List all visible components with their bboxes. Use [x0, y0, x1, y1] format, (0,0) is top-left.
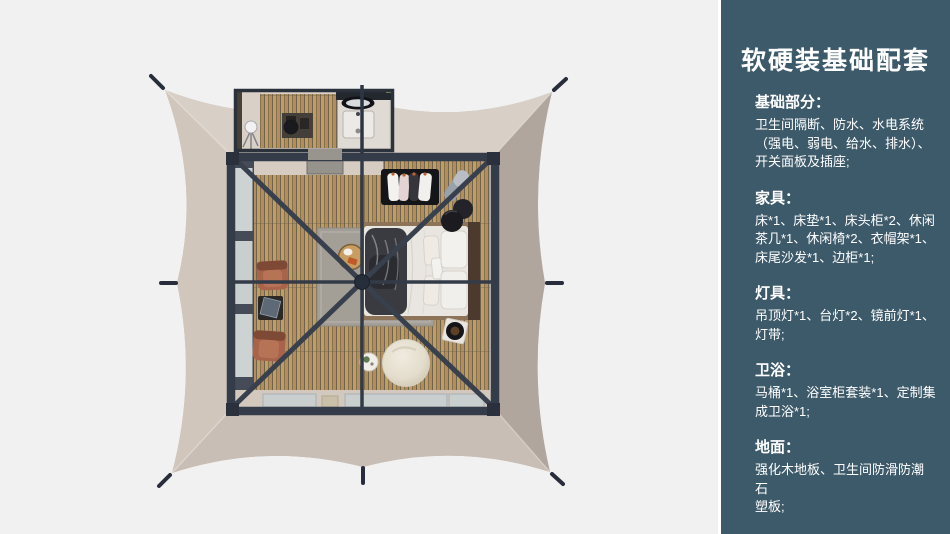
section-flooring-body: 强化木地板、卫生间防滑防潮石 塑板;	[755, 461, 936, 517]
desk-chair	[284, 120, 299, 135]
section-furniture-body: 床*1、床垫*1、床头柜*2、休闲 茶几*1、休闲椅*2、衣帽架*1、 床尾沙发…	[755, 212, 936, 268]
panel-title: 软硬装基础配套	[725, 46, 946, 76]
section-bathroom-heading: 卫浴：	[755, 362, 936, 379]
section-bathroom-body: 马桶*1、浴室柜套装*1、定制集 成卫浴*1;	[755, 384, 936, 421]
section-furniture: 家具： 床*1、床垫*1、床头柜*2、休闲 茶几*1、休闲椅*2、衣帽架*1、 …	[755, 190, 936, 268]
section-furniture-heading: 家具：	[755, 190, 936, 207]
headboard	[468, 222, 480, 320]
tent-top-view-image	[0, 0, 720, 534]
section-bathroom: 卫浴： 马桶*1、浴室柜套装*1、定制集 成卫浴*1;	[755, 362, 936, 421]
section-basics: 基础部分： 卫生间隔断、防水、水电系统 （强电、弱电、给水、排水）、 开关面板及…	[755, 94, 936, 172]
section-lighting: 灯具： 吊顶灯*1、台灯*2、镜前灯*1、 灯带;	[755, 285, 936, 344]
clothes-rack	[381, 169, 439, 205]
bed	[361, 222, 480, 320]
tent-stake	[151, 76, 163, 88]
section-lighting-heading: 灯具：	[755, 285, 936, 302]
tent-floorplan	[0, 0, 720, 534]
chairside-table	[258, 296, 283, 320]
section-lighting-body: 吊顶灯*1、台灯*2、镜前灯*1、 灯带;	[755, 307, 936, 344]
center-hub	[355, 275, 370, 290]
bathroom	[236, 89, 393, 151]
section-flooring: 地面： 强化木地板、卫生间防滑防潮石 塑板;	[755, 439, 936, 517]
section-basics-body: 卫生间隔断、防水、水电系统 （强电、弱电、给水、排水）、 开关面板及插座;	[755, 116, 936, 172]
tent-stake	[552, 474, 563, 484]
spec-panel: 软硬装基础配套 基础部分： 卫生间隔断、防水、水电系统 （强电、弱电、给水、排水…	[718, 0, 950, 534]
bean-bag-pouf	[383, 340, 430, 387]
tent-stake	[159, 475, 170, 486]
section-basics-heading: 基础部分：	[755, 94, 936, 111]
corner-tray-table	[442, 318, 468, 344]
armchair-top	[256, 260, 288, 291]
shower-tray	[343, 111, 374, 138]
tent-stake	[554, 79, 566, 90]
doorway-threshold	[308, 149, 342, 160]
page: { "sidebar": { "title": "软硬装基础配套", "sect…	[0, 0, 950, 534]
vanity-desk	[282, 113, 313, 138]
section-flooring-heading: 地面：	[755, 439, 936, 456]
